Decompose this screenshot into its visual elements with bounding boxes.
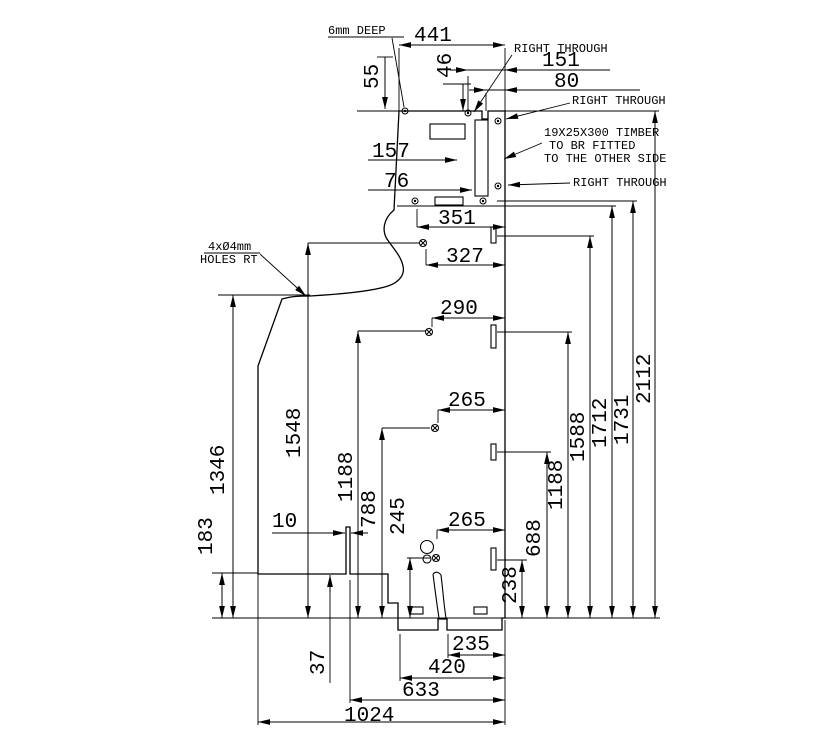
dim-235: 235 (452, 634, 490, 657)
dim-157: 157 (372, 141, 410, 164)
dim-1731: 1731 (612, 395, 635, 445)
annotation-labels: 6mm DEEP RIGHT THROUGH RIGHT THROUGH 19X… (200, 24, 667, 267)
dim-351: 351 (438, 208, 476, 231)
dim-327: 327 (446, 246, 484, 269)
right-through-note-2: RIGHT THROUGH (572, 94, 666, 108)
holes-note-line2: HOLES RT (200, 253, 258, 267)
dim-183: 183 (196, 517, 219, 555)
leader-lines (204, 37, 570, 296)
right-edge-slot-2 (491, 325, 496, 348)
dim-441: 441 (414, 25, 452, 48)
dim-46: 46 (435, 53, 458, 78)
technical-drawing-canvas: 441 55 46 151 80 157 76 351 327 290 265 … (0, 0, 840, 750)
timber-strip-hatched (475, 120, 488, 196)
right-edge-slot-3 (491, 444, 496, 460)
dim-10: 10 (272, 511, 297, 534)
dia4-holes (420, 240, 440, 562)
dim-1024: 1024 (344, 705, 394, 728)
dim-2112: 2112 (634, 354, 657, 404)
dim-1346: 1346 (208, 445, 231, 495)
dim-1588: 1588 (568, 412, 591, 462)
dim-37: 37 (308, 650, 331, 675)
deep-note: 6mm DEEP (328, 24, 386, 38)
dim-788: 788 (359, 490, 382, 528)
dim-238: 238 (500, 566, 523, 604)
mid-slot (435, 197, 463, 205)
keyhole-cutout (421, 541, 434, 564)
dim-1188-right: 1188 (546, 460, 569, 510)
part-features (402, 108, 501, 618)
holes-note-line1: 4xØ4mm (208, 240, 251, 254)
dim-1548: 1548 (284, 408, 307, 458)
curved-slit (433, 572, 446, 618)
right-through-note-1: RIGHT THROUGH (514, 42, 608, 56)
dim-245: 245 (388, 497, 411, 535)
dim-290: 290 (440, 298, 478, 321)
tab-slot-right (474, 607, 487, 614)
dim-1188-left: 1188 (336, 452, 359, 502)
dimension-drawing: 441 55 46 151 80 157 76 351 327 290 265 … (0, 0, 840, 750)
dim-633: 633 (402, 680, 440, 703)
timber-note-line3: TO THE OTHER SIDE (544, 152, 666, 166)
top-slot (430, 124, 465, 139)
dim-688: 688 (524, 519, 547, 557)
right-through-note-3: RIGHT THROUGH (573, 176, 667, 190)
right-edge-slot-1 (491, 227, 496, 243)
dim-420: 420 (428, 657, 466, 680)
dim-265-lower: 265 (448, 510, 486, 533)
dim-265-upper: 265 (448, 390, 486, 413)
dim-80: 80 (554, 71, 579, 94)
timber-note-line1: 19X25X300 TIMBER (544, 126, 659, 140)
right-edge-slot-4 (491, 548, 496, 570)
dim-55: 55 (362, 64, 385, 89)
tab-slot-left (410, 607, 423, 614)
dim-76: 76 (384, 171, 409, 194)
dim-1712: 1712 (590, 398, 613, 448)
timber-note-line2: TO BR FITTED (549, 139, 635, 153)
